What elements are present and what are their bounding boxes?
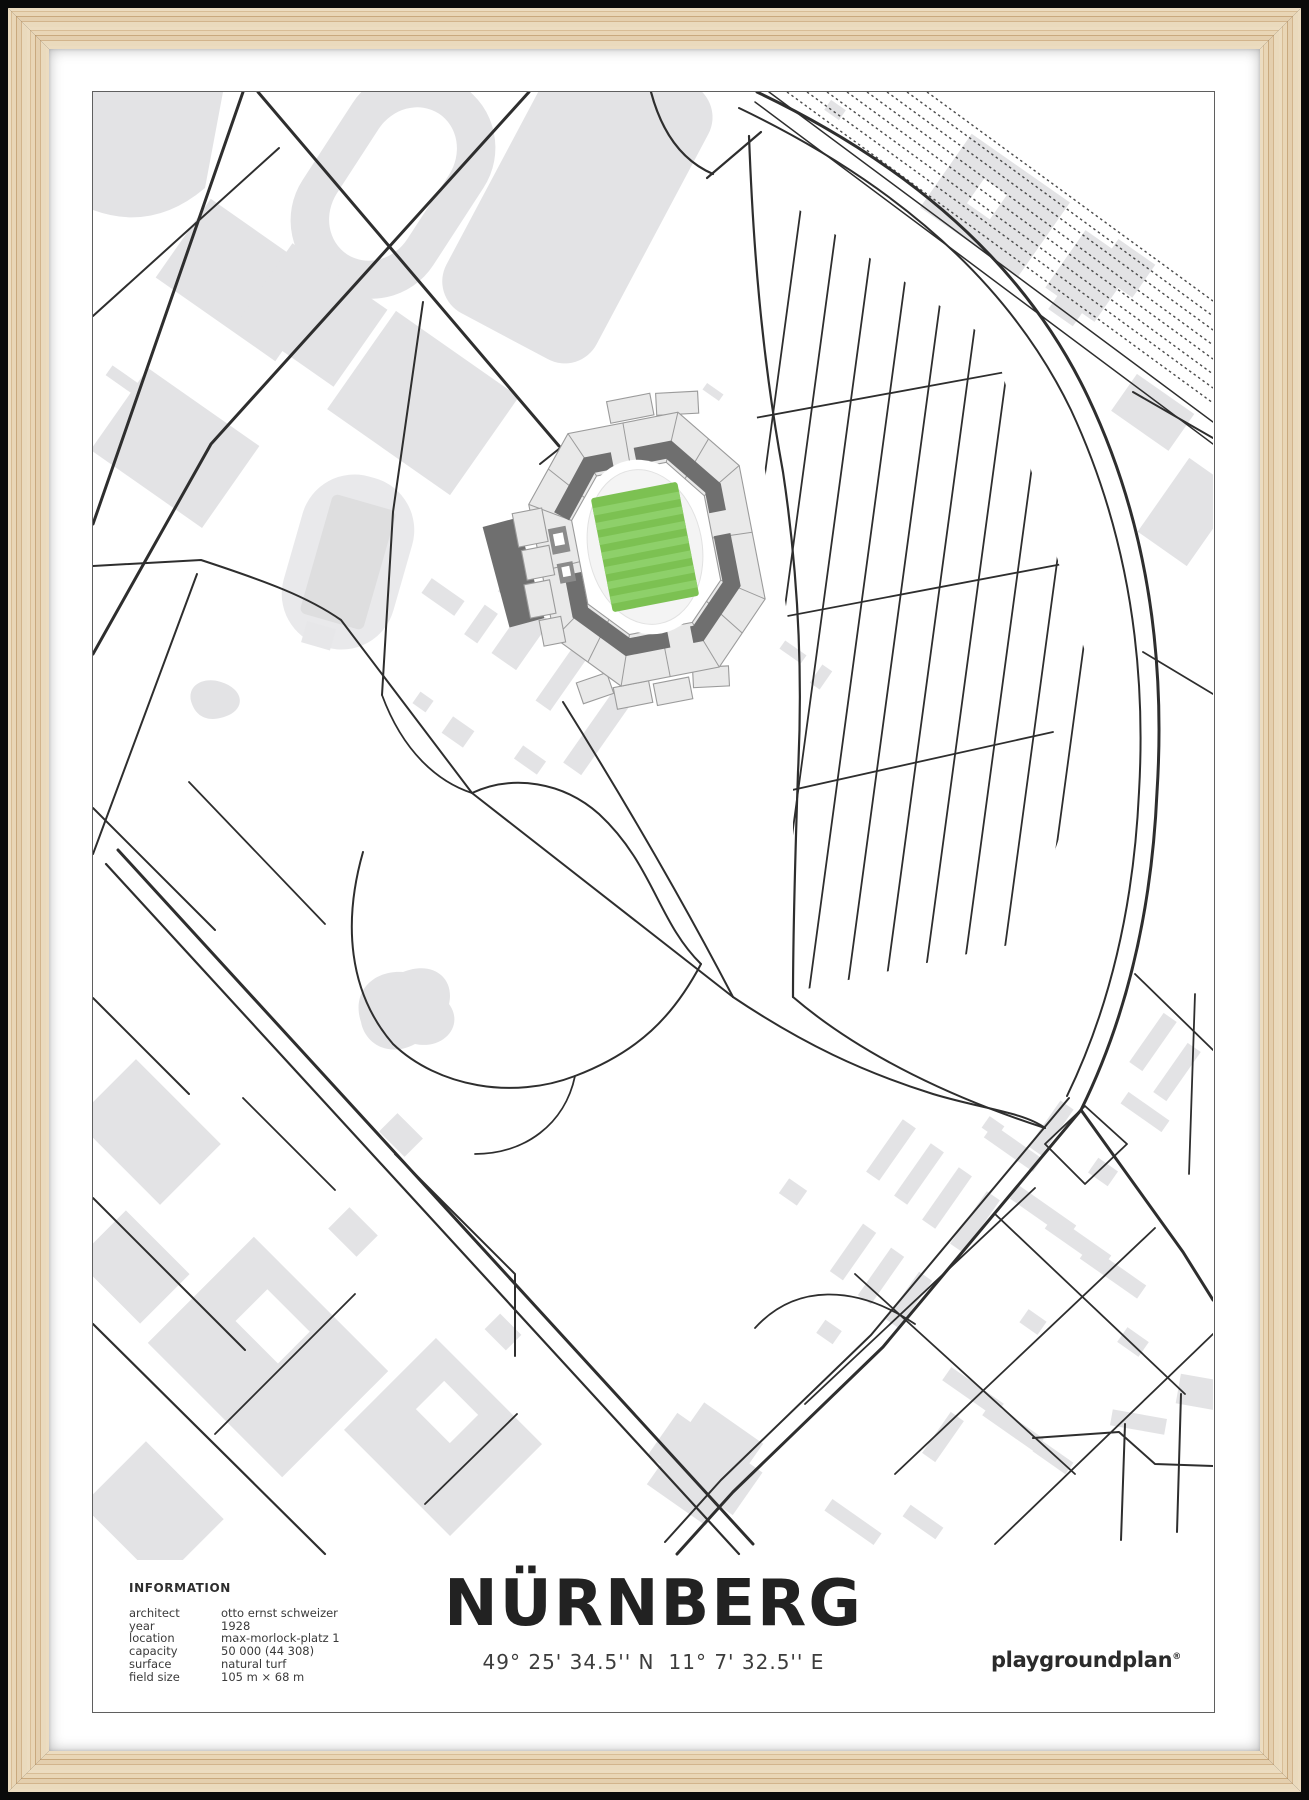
frame-wood-left [8, 8, 49, 1792]
ponds [190, 680, 454, 1049]
housing-district [779, 1013, 1213, 1545]
frame-wood-bottom [8, 1751, 1301, 1792]
frame-wood-top [8, 8, 1301, 49]
registered-mark: ® [1172, 1652, 1181, 1662]
athletics-track-west [268, 462, 427, 665]
stadium [464, 379, 782, 732]
poster: INFORMATION architectotto ernst schweize… [92, 91, 1215, 1713]
city-map [93, 92, 1213, 1560]
framed-poster-photo: INFORMATION architectotto ernst schweize… [0, 0, 1309, 1800]
city-title: NÜRNBERG [93, 1572, 1214, 1636]
map-svg [93, 92, 1213, 1560]
buildings-layer [93, 92, 1213, 1560]
brand-logo: playgroundplan® [991, 1648, 1181, 1672]
industrial-buildings [93, 1059, 542, 1560]
frame-wood-right [1260, 8, 1301, 1792]
